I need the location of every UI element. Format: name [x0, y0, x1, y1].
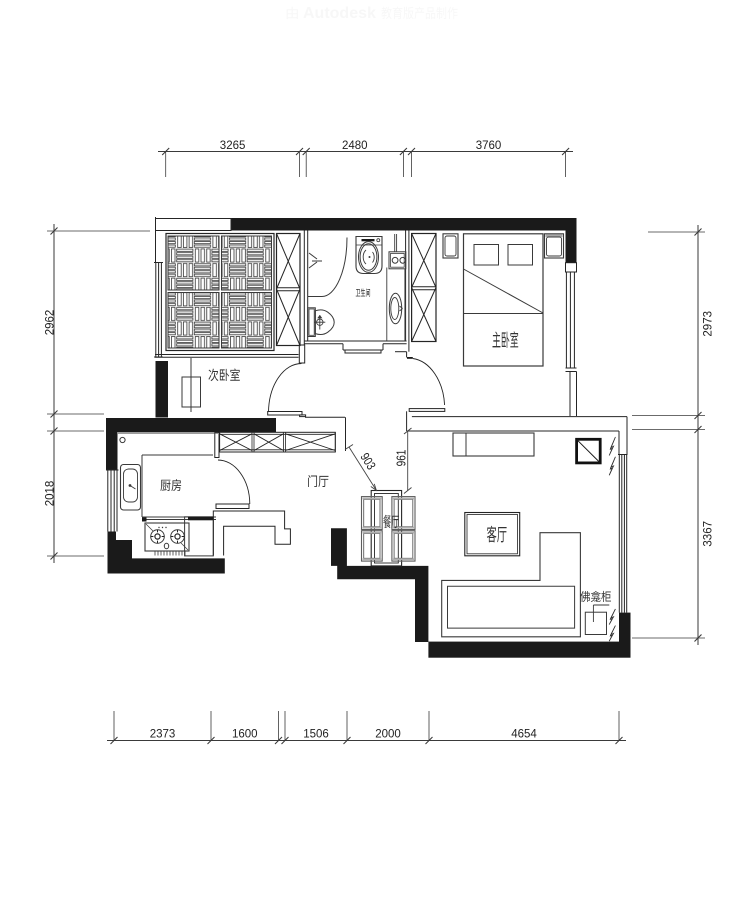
svg-text:2018: 2018: [45, 481, 57, 507]
svg-text:1506: 1506: [303, 729, 329, 741]
svg-text:2373: 2373: [150, 729, 176, 741]
svg-text:4654: 4654: [511, 729, 537, 741]
svg-text:2962: 2962: [45, 310, 57, 336]
svg-text:3265: 3265: [220, 140, 246, 152]
svg-text:2973: 2973: [703, 311, 715, 337]
svg-text:2000: 2000: [375, 729, 401, 741]
svg-text:2480: 2480: [342, 140, 368, 152]
svg-text:961: 961: [395, 450, 409, 467]
svg-text:3367: 3367: [703, 521, 715, 547]
svg-text:1600: 1600: [232, 729, 258, 741]
svg-text:3760: 3760: [476, 140, 502, 152]
svg-text:Autodesk: Autodesk: [303, 5, 376, 22]
